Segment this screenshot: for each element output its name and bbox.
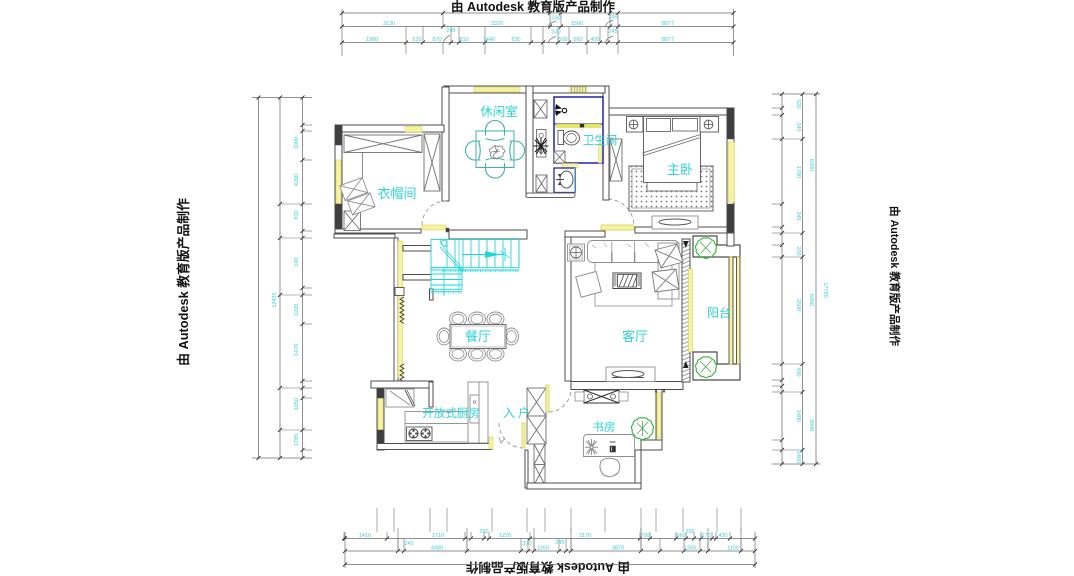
svg-text:1410: 1410 [359,533,371,539]
svg-text:1000: 1000 [294,137,300,149]
svg-text:560: 560 [573,37,582,43]
svg-text:245: 245 [608,29,617,35]
svg-text:3130: 3130 [383,21,395,27]
svg-text:入户: 入户 [503,405,533,420]
svg-text:休闲室: 休闲室 [480,104,518,119]
svg-text:由 Autodesk 教育版产品制作: 由 Autodesk 教育版产品制作 [451,0,615,14]
svg-text:1220: 1220 [499,533,511,539]
svg-text:1780: 1780 [795,166,801,178]
svg-text:13435: 13435 [272,292,278,307]
svg-text:430: 430 [718,533,727,539]
svg-text:1500: 1500 [571,21,583,27]
svg-text:245: 245 [555,540,564,546]
svg-text:4380: 4380 [431,546,443,552]
svg-text:由 Autodesk 教育版产品制作: 由 Autodesk 教育版产品制作 [888,206,901,346]
svg-text:开放式厨房: 开放式厨房 [422,406,480,420]
svg-text:340: 340 [795,122,801,131]
svg-text:8877: 8877 [662,21,674,27]
svg-text:1460: 1460 [795,451,801,463]
svg-text:1220: 1220 [294,304,300,316]
svg-text:700: 700 [640,533,649,539]
svg-text:1050: 1050 [294,398,300,410]
svg-text:520: 520 [412,37,421,43]
svg-text:300: 300 [685,529,694,535]
svg-text:3870: 3870 [612,546,624,552]
svg-text:245: 245 [608,15,617,21]
svg-text:1260: 1260 [537,546,549,552]
svg-text:140: 140 [294,257,300,266]
svg-text:1478: 1478 [294,344,300,356]
svg-text:520: 520 [795,99,801,108]
svg-text:245: 245 [446,28,455,34]
svg-text:衣帽间: 衣帽间 [377,186,416,201]
svg-text:阳台: 阳台 [707,305,731,320]
svg-text:1260: 1260 [684,546,696,552]
svg-text:870: 870 [432,37,441,43]
svg-text:330: 330 [551,16,560,22]
svg-text:17780: 17780 [822,282,828,297]
svg-text:餐厅: 餐厅 [465,329,491,344]
svg-text:345: 345 [795,211,801,220]
svg-text:3170: 3170 [579,533,591,539]
svg-text:390: 390 [479,529,488,535]
svg-text:6950: 6950 [808,294,814,306]
svg-text:1785: 1785 [294,434,300,446]
svg-text:810: 810 [459,37,468,43]
svg-text:1400: 1400 [795,410,801,422]
svg-text:3040: 3040 [808,419,814,431]
svg-text:200: 200 [795,246,801,255]
svg-text:810: 810 [294,210,300,219]
svg-text:670: 670 [701,533,710,539]
svg-text:主卧: 主卧 [667,162,693,177]
svg-text:242: 242 [404,541,413,547]
svg-text:500: 500 [558,37,567,43]
svg-text:1980: 1980 [366,37,378,43]
svg-text:4200: 4200 [294,174,300,186]
svg-text:490: 490 [795,367,801,376]
svg-text:卫生间: 卫生间 [583,133,618,147]
svg-text:由 Autodesk 教育版产品制作: 由 Autodesk 教育版产品制作 [176,198,191,366]
svg-text:书房: 书房 [593,421,616,434]
svg-text:2500: 2500 [795,299,801,311]
svg-text:830: 830 [511,37,520,43]
svg-text:1440: 1440 [483,37,495,43]
svg-text:330: 330 [551,30,560,36]
svg-text:1100: 1100 [727,546,739,552]
svg-text:6300: 6300 [808,159,814,171]
svg-text:400: 400 [590,37,599,43]
svg-text:370: 370 [522,541,531,547]
svg-text:3320: 3320 [491,21,503,27]
svg-text:由 Autodesk 教育版产品制作: 由 Autodesk 教育版产品制作 [466,560,630,575]
svg-text:8877: 8877 [662,37,674,43]
svg-text:960: 960 [676,533,685,539]
svg-text:客厅: 客厅 [622,329,648,344]
svg-text:1710: 1710 [432,533,444,539]
